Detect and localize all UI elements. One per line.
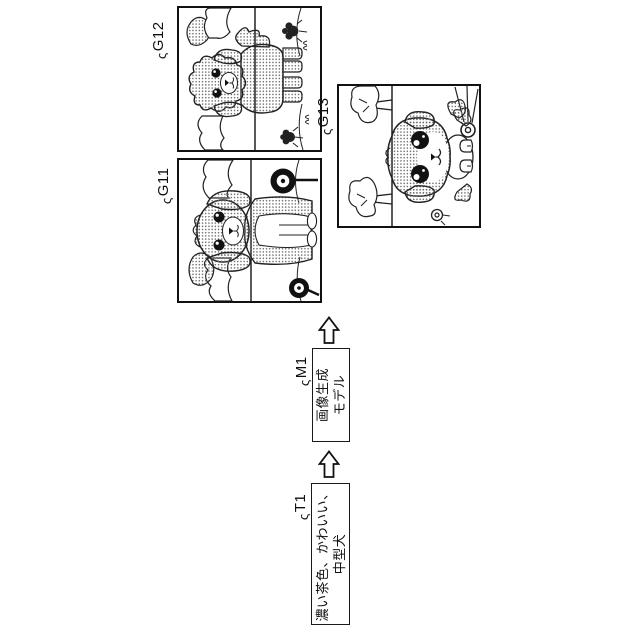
ref-label-g13-text: G13 — [315, 97, 332, 127]
model-line-1: 画像生成 — [314, 368, 331, 422]
ref-label-m1-text: M1 — [293, 356, 310, 378]
dog-illustration-sitting-with-wagon — [179, 160, 320, 301]
prompt-text-box: 濃い茶色、かわいい、 中型犬 — [311, 483, 350, 625]
leader-squiggle: ς — [159, 197, 174, 204]
generated-image-g13 — [337, 84, 481, 228]
ref-label-g12-text: G12 — [150, 21, 167, 51]
tree-left — [349, 177, 392, 216]
block-arrow-icon — [318, 450, 345, 478]
ref-label-t1-text: T1 — [292, 494, 309, 513]
model-line-2: モデル — [331, 375, 348, 416]
generated-image-g11 — [177, 158, 322, 303]
tree-right — [351, 86, 392, 123]
ref-label-t1: ςT1 — [292, 494, 309, 520]
leader-squiggle: ς — [154, 52, 169, 59]
leader-squiggle: ς — [297, 379, 312, 386]
dog-illustration-shaggy-standing — [179, 8, 320, 150]
prompt-line-1: 濃い茶色、かわいい、 — [314, 487, 331, 622]
flower-ring-left — [432, 210, 451, 226]
rotated-patent-figure: 濃い茶色、かわいい、 中型犬 ςT1 画像生成 モデル ςM1 ςG — [0, 0, 640, 640]
ref-label-g11: ςG11 — [155, 167, 172, 204]
wagon-wheel-right — [271, 169, 319, 194]
dog-illustration-chibi-cartoon — [339, 86, 479, 226]
wagon-wheel-left — [289, 278, 319, 298]
block-arrow-icon — [318, 316, 345, 344]
flower-dark-right — [282, 20, 307, 42]
leader-squiggle: ς — [296, 513, 311, 520]
ref-label-g13: ςG13 — [315, 97, 332, 135]
prompt-line-2: 中型犬 — [331, 534, 348, 575]
leader-squiggle: ς — [319, 128, 334, 135]
model-box: 画像生成 モデル — [312, 348, 350, 442]
ref-label-m1: ςM1 — [293, 356, 310, 386]
figure-canvas: 濃い茶色、かわいい、 中型犬 ςT1 画像生成 モデル ςM1 ςG — [0, 0, 640, 640]
ref-label-g12: ςG12 — [150, 21, 167, 59]
generated-image-g12 — [177, 6, 322, 152]
ref-label-g11-text: G11 — [155, 167, 172, 196]
